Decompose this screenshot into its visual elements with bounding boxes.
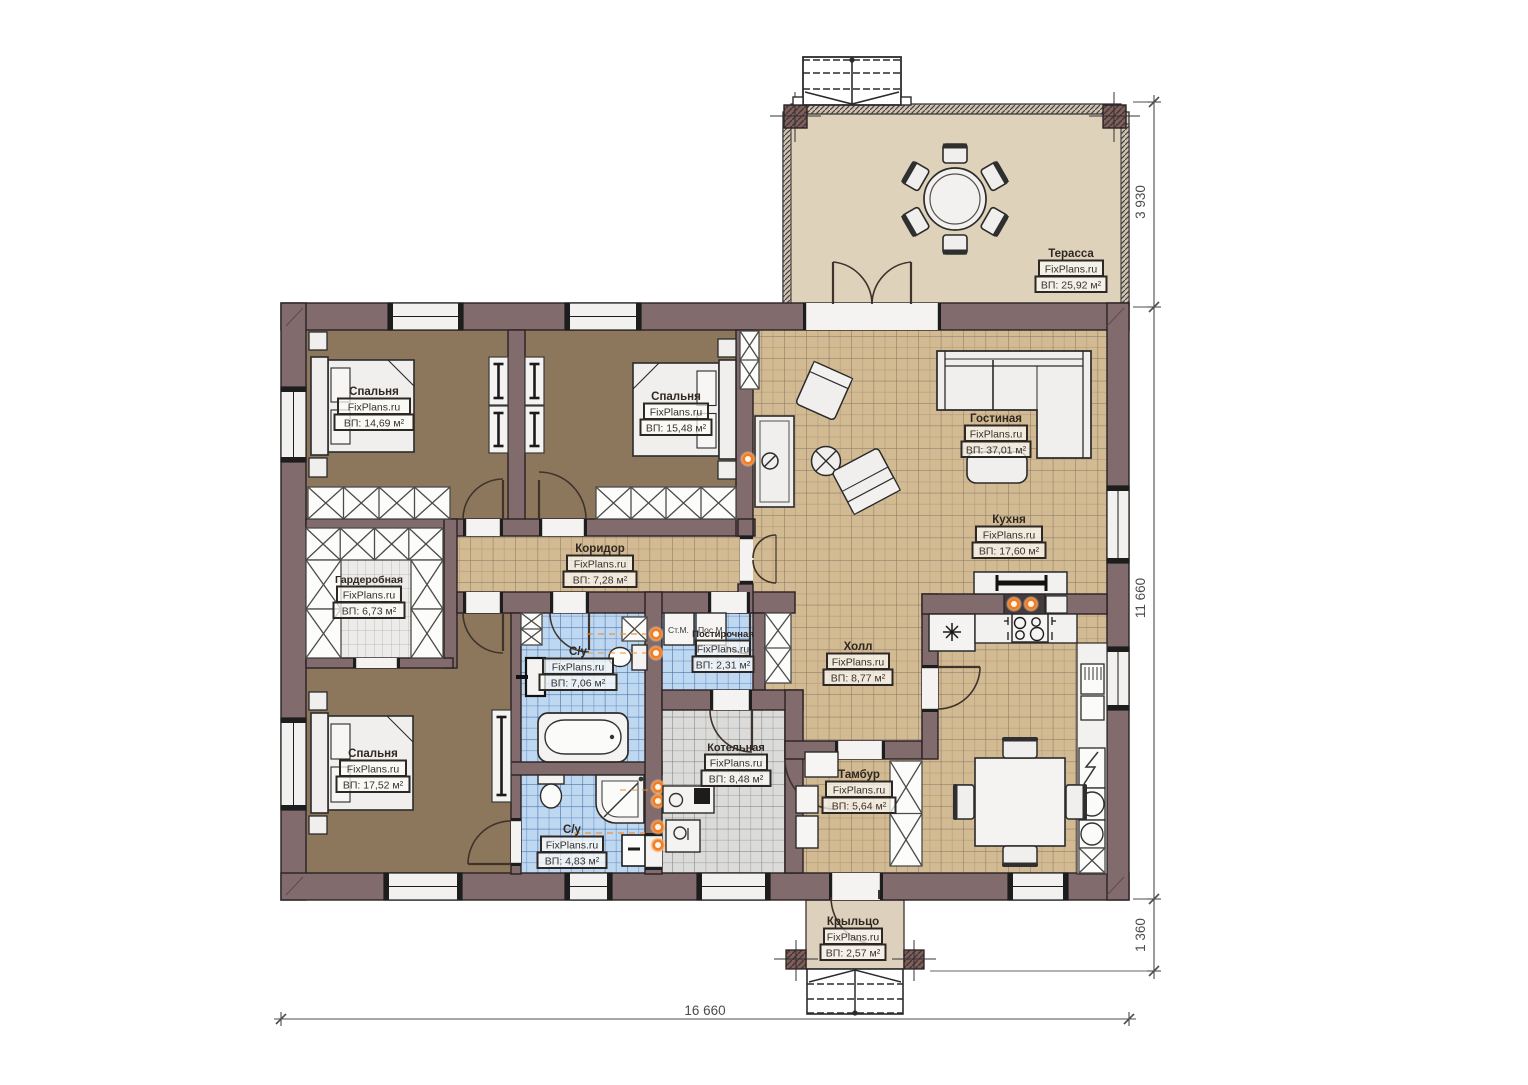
svg-text:FixPlans.ru: FixPlans.ru (546, 839, 599, 851)
svg-text:ВП: 2,31 м²: ВП: 2,31 м² (696, 659, 751, 671)
svg-text:ВП: 2,57 м²: ВП: 2,57 м² (826, 947, 881, 959)
svg-text:11 660: 11 660 (1133, 578, 1148, 618)
svg-text:Крыльцо: Крыльцо (827, 916, 879, 928)
svg-text:Гостиная: Гостиная (970, 413, 1022, 425)
svg-text:Гардеробная: Гардеробная (335, 574, 403, 586)
svg-text:FixPlans.ru: FixPlans.ru (343, 589, 396, 601)
svg-text:Коридор: Коридор (575, 543, 625, 555)
svg-text:ВП: 25,92 м²: ВП: 25,92 м² (1041, 279, 1102, 291)
svg-text:С/у: С/у (569, 646, 588, 658)
svg-text:Спальня: Спальня (349, 386, 399, 398)
svg-text:1 360: 1 360 (1133, 918, 1148, 952)
svg-text:ВП: 7,28 м²: ВП: 7,28 м² (573, 574, 628, 586)
svg-text:Постирочная: Постирочная (692, 629, 754, 640)
svg-text:FixPlans.ru: FixPlans.ru (832, 656, 885, 668)
svg-text:FixPlans.ru: FixPlans.ru (970, 428, 1023, 440)
svg-text:ВП: 4,83 м²: ВП: 4,83 м² (545, 855, 600, 867)
svg-text:ВП: 8,77 м²: ВП: 8,77 м² (831, 672, 886, 684)
svg-text:Холл: Холл (844, 641, 873, 653)
svg-text:Спальня: Спальня (651, 391, 701, 403)
svg-text:Кухня: Кухня (992, 514, 1026, 526)
svg-text:ВП: 7,06 м²: ВП: 7,06 м² (551, 677, 606, 689)
svg-text:ВП: 6,73 м²: ВП: 6,73 м² (342, 605, 397, 617)
svg-text:ВП: 15,48 м²: ВП: 15,48 м² (646, 422, 707, 434)
svg-text:ВП: 5,64 м²: ВП: 5,64 м² (832, 800, 887, 812)
svg-text:FixPlans.ru: FixPlans.ru (827, 931, 880, 943)
svg-text:Спальня: Спальня (348, 748, 398, 760)
svg-text:FixPlans.ru: FixPlans.ru (697, 643, 750, 655)
svg-text:ВП: 37,01 м²: ВП: 37,01 м² (966, 444, 1027, 456)
svg-text:Терасса: Терасса (1048, 248, 1094, 260)
svg-text:ВП: 17,60 м²: ВП: 17,60 м² (979, 545, 1040, 557)
svg-text:С/у: С/у (563, 824, 582, 836)
svg-text:FixPlans.ru: FixPlans.ru (552, 661, 605, 673)
svg-text:FixPlans.ru: FixPlans.ru (833, 784, 886, 796)
svg-text:Ст.М.: Ст.М. (668, 625, 689, 635)
svg-text:ВП: 8,48 м²: ВП: 8,48 м² (709, 773, 764, 785)
svg-text:ВП: 14,69 м²: ВП: 14,69 м² (344, 417, 405, 429)
svg-text:FixPlans.ru: FixPlans.ru (650, 406, 703, 418)
svg-text:Тамбур: Тамбур (838, 769, 880, 781)
svg-text:FixPlans.ru: FixPlans.ru (1045, 263, 1098, 275)
svg-text:FixPlans.ru: FixPlans.ru (983, 529, 1036, 541)
svg-text:FixPlans.ru: FixPlans.ru (574, 558, 627, 570)
svg-text:Котельная: Котельная (707, 742, 765, 754)
svg-text:FixPlans.ru: FixPlans.ru (348, 401, 401, 413)
svg-text:3 930: 3 930 (1133, 185, 1148, 219)
svg-text:FixPlans.ru: FixPlans.ru (347, 763, 400, 775)
svg-text:ВП: 17,52 м²: ВП: 17,52 м² (343, 779, 404, 791)
svg-text:16 660: 16 660 (684, 1003, 725, 1018)
svg-text:FixPlans.ru: FixPlans.ru (710, 757, 763, 769)
